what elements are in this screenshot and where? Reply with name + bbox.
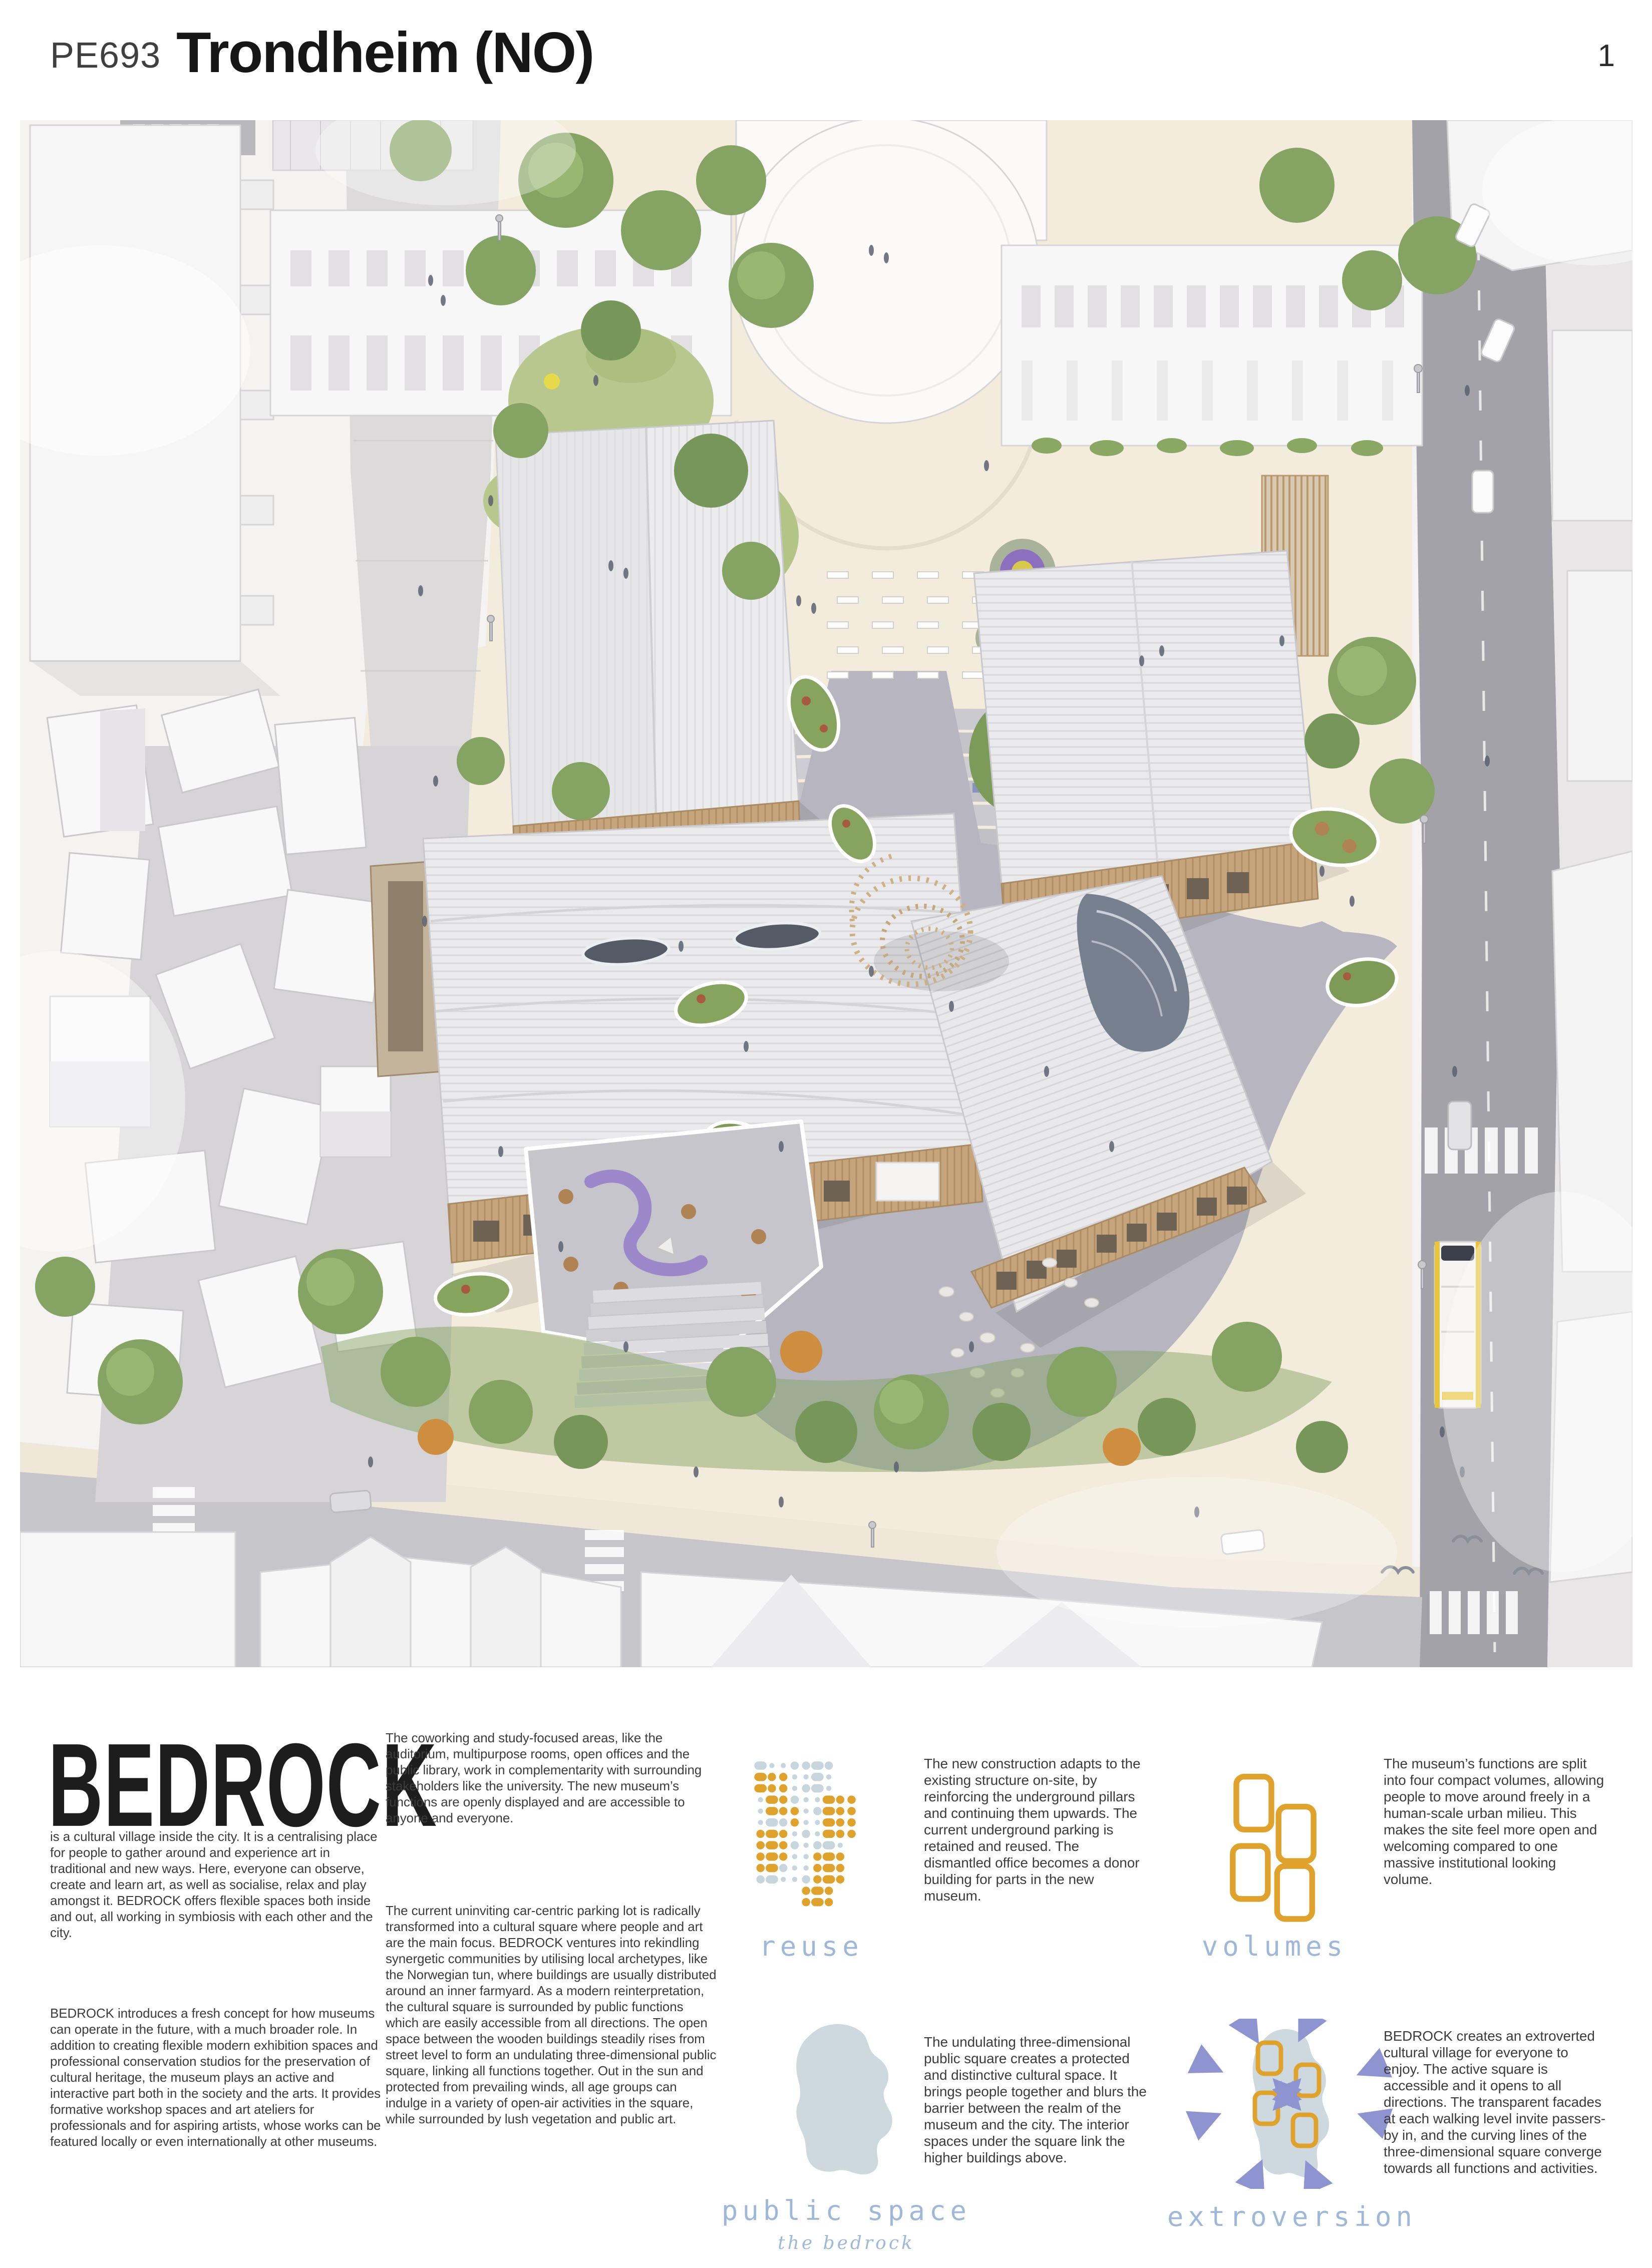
site-plan-rendering (20, 120, 1632, 1667)
reuse-diagram-icon (749, 1758, 875, 1914)
brand-intro-text: is a cultural village inside the city. I… (50, 1828, 385, 1941)
reuse-text: The new construction adapts to the exist… (924, 1755, 1150, 1904)
public-space-sublabel: the bedrock (701, 2233, 992, 2253)
cultural-square-text: The current uninviting car-centric parki… (386, 1903, 717, 2127)
public-space-text: The undulating three-dimensional public … (924, 2034, 1150, 2166)
brand-concept-text: BEDROCK introduces a fresh concept for h… (50, 2005, 385, 2149)
extroversion-text: BEDROCK creates an extroverted cultural … (1384, 2028, 1608, 2176)
reuse-label: reuse (741, 1931, 881, 1962)
competition-board-page: Trondheim (NO) PE693 1 (0, 0, 1652, 2268)
volumes-diagram-icon (1212, 1772, 1335, 1923)
coworking-text: The coworking and study-focused areas, l… (386, 1730, 717, 1826)
page-number: 1 (1598, 38, 1615, 74)
brand-title: BEDROCK (48, 1726, 437, 1845)
aerial-rendering (20, 120, 1632, 1667)
volumes-text: The museum’s functions are split into fo… (1384, 1755, 1608, 1887)
page-title: Trondheim (NO) (176, 20, 593, 86)
extroversion-label: extroversion (1152, 2201, 1432, 2232)
project-code: PE693 (50, 35, 161, 76)
reuse-dots (754, 1761, 856, 1906)
public-space-blob-icon (781, 2023, 904, 2178)
extroversion-diagram-icon (1182, 2019, 1397, 2189)
volumes-label: volumes (1187, 1931, 1362, 1962)
public-space-label: public space (701, 2195, 992, 2226)
